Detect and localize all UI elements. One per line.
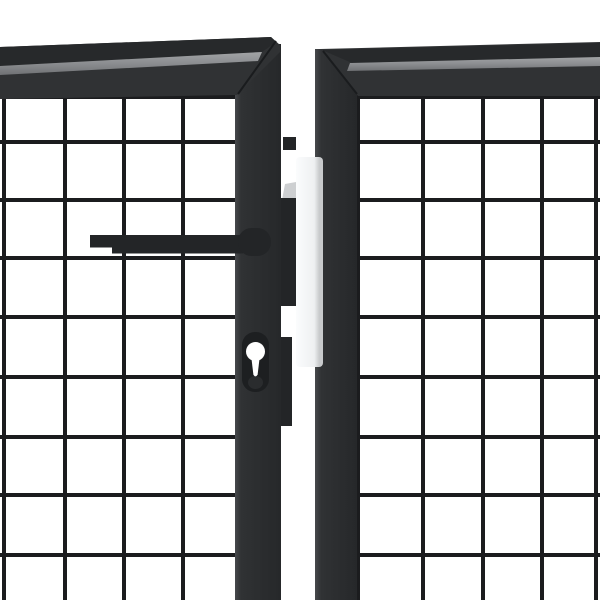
- left-gate-stile: [235, 44, 281, 600]
- gate-product-image: Close-up product photo of an anthracite …: [0, 0, 600, 600]
- gate-scene: Close-up product photo of an anthracite …: [0, 0, 600, 600]
- handle-bar-notch: [90, 248, 112, 255]
- lock-cylinder-shadow: [248, 376, 263, 389]
- latch-top-tab: [283, 137, 296, 150]
- gate-lock: [242, 332, 269, 392]
- latch-bar: [281, 198, 296, 306]
- handle-bar: [90, 235, 243, 254]
- lock-housing-edge: [281, 337, 292, 426]
- latch-plate: [296, 157, 323, 367]
- handle-boss: [238, 228, 271, 256]
